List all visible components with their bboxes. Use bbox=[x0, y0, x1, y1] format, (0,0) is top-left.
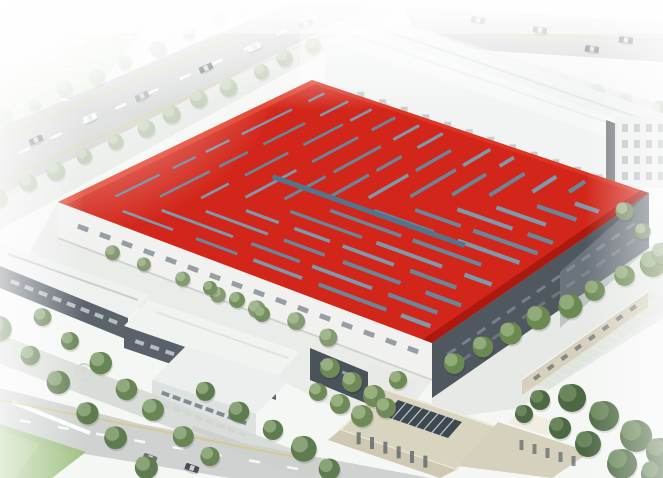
factory-aerial-rendering bbox=[0, 0, 663, 478]
birds bbox=[12, 19, 20, 21]
haze-overlay bbox=[0, 0, 85, 478]
scene-layers bbox=[0, 0, 663, 478]
aerial-scene-canvas bbox=[0, 0, 663, 478]
haze-overlay bbox=[585, 0, 663, 478]
